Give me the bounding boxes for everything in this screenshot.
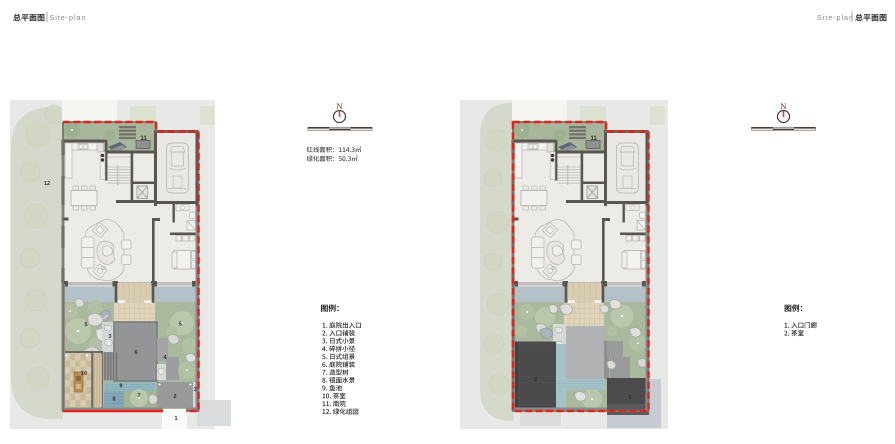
svg-text:Site-plan: Site-plan xyxy=(50,13,87,22)
svg-text:10: 10 xyxy=(81,371,87,377)
svg-text:Site-plan: Site-plan xyxy=(817,13,854,22)
svg-text:5: 5 xyxy=(179,322,182,328)
svg-text:11: 11 xyxy=(141,136,148,142)
svg-text:3: 3 xyxy=(194,387,197,393)
svg-text:3: 3 xyxy=(109,334,112,340)
svg-text:4: 4 xyxy=(164,355,167,361)
svg-text:9: 9 xyxy=(120,384,123,390)
svg-text:8: 8 xyxy=(113,397,116,403)
svg-text:11: 11 xyxy=(591,136,598,142)
svg-text:N: N xyxy=(780,101,786,111)
svg-text:12: 12 xyxy=(44,181,50,187)
svg-text:1: 1 xyxy=(629,395,632,401)
svg-text:5: 5 xyxy=(85,322,88,328)
svg-text:N: N xyxy=(336,101,342,111)
svg-text:2: 2 xyxy=(534,377,537,383)
svg-text:6: 6 xyxy=(135,350,138,356)
svg-text:1: 1 xyxy=(175,416,178,422)
svg-text:2: 2 xyxy=(174,394,177,400)
svg-text:7: 7 xyxy=(138,393,141,399)
